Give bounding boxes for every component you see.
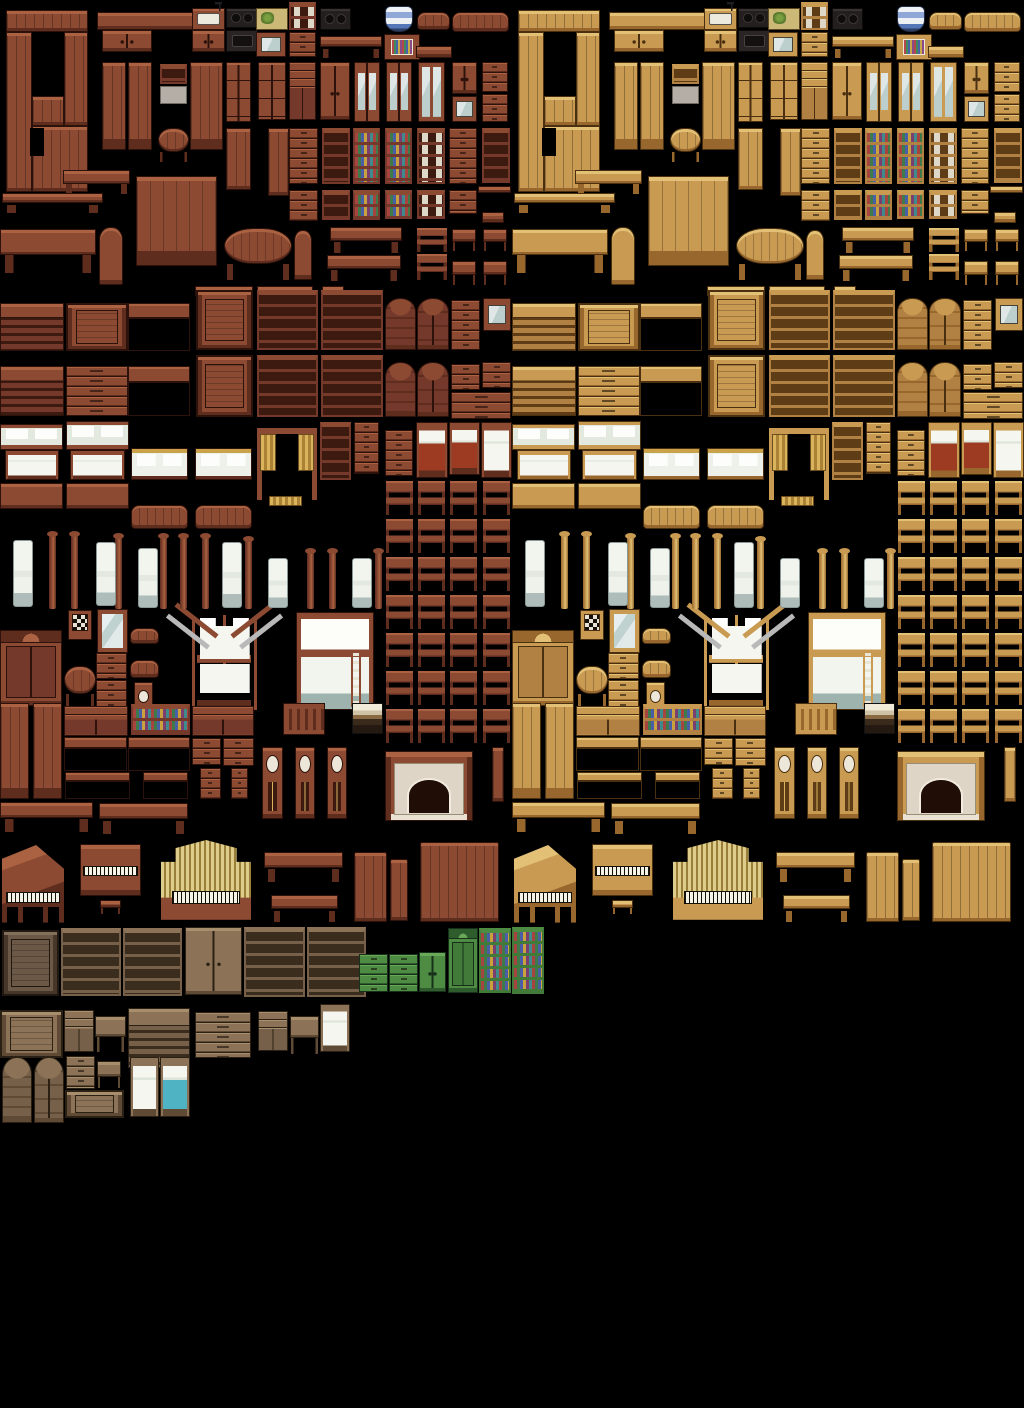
sink-base-cabinet-light: [704, 30, 737, 52]
side-chair-tile-r6c0: [386, 709, 413, 743]
side-chair-tile-r0c0: [386, 481, 413, 515]
stove-top: [226, 8, 258, 28]
drawer-chest-seven: [289, 128, 318, 184]
mattress-slice-light-1: [608, 542, 628, 606]
drawer-chest-four: [449, 128, 477, 184]
drawer-grid-b-light: [735, 738, 766, 766]
bed-post-5: [202, 537, 209, 609]
side-chair-tile-light-r3c0: [898, 595, 925, 629]
low-bench-long-a-light: [512, 802, 605, 832]
pantry-cabinet-b: [128, 62, 152, 150]
drawer-two-top: [482, 62, 508, 92]
carved-pediment-b-light: [642, 660, 671, 678]
bookshelf-low-b-light: [897, 190, 924, 219]
bed-post-light-6: [757, 540, 764, 609]
stool-b: [483, 229, 507, 251]
gray-board-light: [672, 86, 699, 104]
desk-weathered-a: [95, 1016, 126, 1052]
nightstand-weathered: [66, 1056, 95, 1089]
side-chair-tile-r1c3: [483, 519, 510, 553]
nightstand-three-drawer: [385, 430, 413, 476]
side-chair-tile-light-r5c2: [962, 671, 989, 705]
cupboard-small: [452, 62, 477, 94]
cupboard-six-door-light: [738, 62, 763, 122]
shelf-bit-light: [994, 212, 1016, 223]
open-shelf-wide-d-light: [833, 355, 895, 417]
counter-ledge: [416, 46, 452, 58]
side-chair-tile-light-r4c0: [898, 633, 925, 667]
shelf-weathered-d: [307, 927, 366, 997]
arched-cabinet-a: [385, 298, 416, 350]
side-chair-tile-r4c3: [483, 633, 510, 667]
bed-post-light-0: [561, 535, 568, 609]
drawer-tower-light: [866, 422, 891, 474]
bed-top-view-a-light: [512, 424, 575, 450]
canopy-frame-curtains-light: [769, 428, 829, 500]
carved-pediment-a: [130, 628, 159, 644]
double-door-cabinet-tall-light: [708, 355, 765, 417]
cabinet-weathered-ornate: [2, 930, 59, 996]
plank-wall-notch-light: [542, 128, 556, 156]
counter-top: [97, 12, 193, 30]
grandfather-clock-b-light: [807, 747, 827, 819]
workbench-hinged: [63, 170, 130, 194]
bed-post-light-7: [819, 552, 826, 609]
pipe-organ: [161, 840, 251, 920]
side-chair-tile-r3c0: [386, 595, 413, 629]
drawer-chest-low-light: [801, 190, 830, 221]
bookshelf-full-a-light: [865, 128, 892, 184]
side-chair-tile-r2c2: [450, 557, 477, 591]
carved-pediment-a-light: [642, 628, 671, 644]
bed-rail-carved-a: [131, 505, 188, 529]
plank-wall-top-light: [518, 10, 600, 32]
bench-with-back-light: [832, 36, 894, 58]
side-chair-tile-r6c2: [450, 709, 477, 743]
side-chair-tile-light-r1c1: [930, 519, 957, 553]
dresser-weathered-carved: [0, 1010, 63, 1058]
game-table-checker-light: [580, 610, 604, 640]
wide-dresser-six-knob-light: [963, 392, 1023, 419]
side-chair-tile-r6c1: [418, 709, 445, 743]
drawer-box-a-light: [963, 364, 992, 390]
counter-ledge-light: [928, 46, 964, 58]
side-chair-tile-light-r5c1: [930, 671, 957, 705]
side-chair-tile-light-r4c2: [962, 633, 989, 667]
carved-dresser-a: [66, 303, 128, 351]
garden-bench-b-light: [839, 255, 913, 281]
plank-screen-narrow-light: [902, 859, 920, 921]
plank-wall-right-light: [576, 32, 600, 126]
tall-wardrobe-a-light: [512, 703, 541, 799]
green-cabinet-door: [419, 952, 446, 992]
cabinet-weathered-doors: [185, 927, 242, 995]
armoire: [0, 630, 62, 706]
drawer-box-b-light: [994, 362, 1023, 388]
plank-door-light: [738, 128, 763, 190]
bed-white: [481, 422, 512, 478]
drawer-low: [449, 190, 477, 214]
cabinet-drawer-combo: [289, 62, 316, 120]
single-bed-white: [130, 1057, 159, 1117]
oval-table-light: [736, 228, 804, 280]
side-chair-light: [806, 230, 824, 280]
drawer-tower-small-a-light: [712, 768, 733, 799]
side-chair-tile-r1c2: [450, 519, 477, 553]
shelf-tower: [320, 422, 351, 480]
ornate-door-cabinet: [196, 290, 253, 350]
drawer-grid-a: [192, 738, 221, 765]
drawer-low-light: [961, 190, 989, 214]
side-chair-tile-r5c2: [450, 671, 477, 705]
bureau-top-light: [704, 706, 766, 736]
canopy-bed-double-light: [680, 612, 793, 710]
bed-single-b: [70, 450, 125, 480]
bed-red-b-light: [961, 422, 992, 475]
bed-post-3: [160, 537, 167, 609]
dish-cabinet-light: [929, 128, 957, 184]
grandfather-clock-b: [295, 747, 315, 819]
bunk-bed: [296, 612, 374, 710]
open-shelf-wide-b: [321, 290, 383, 350]
tall-wardrobe-b: [33, 703, 62, 799]
side-chair-tile-light-r6c2: [962, 709, 989, 743]
fireplace: [385, 751, 473, 821]
side-chair-tile-light-r5c3: [995, 671, 1022, 705]
open-shelf-wide-c: [257, 355, 318, 417]
bed-post-4: [180, 537, 187, 609]
tall-plank-light: [780, 128, 801, 196]
plank-screen-two: [354, 852, 387, 922]
stool-b-light: [995, 229, 1019, 251]
bed-post-light-9: [887, 552, 894, 609]
bed-rail-carved-a-light: [643, 505, 700, 529]
nightstand-stack-b-light: [608, 680, 639, 708]
tall-wardrobe-b-light: [545, 703, 574, 799]
long-low-bench-light: [514, 193, 615, 213]
side-chair-tile-r1c0: [386, 519, 413, 553]
double-bed-gold-b-light: [707, 448, 764, 480]
side-chair-tile-light-r0c2: [962, 481, 989, 515]
slatted-sideboard-b-light: [512, 366, 576, 416]
glass-door-cabinet-b-light: [898, 62, 924, 122]
garden-bench-b: [327, 255, 401, 281]
counter-arch-cabinets-light: [614, 30, 664, 52]
side-chair-tile-r0c1: [418, 481, 445, 515]
drawer-two-top-light: [994, 62, 1020, 92]
curtain-valance-light: [781, 496, 814, 506]
bunk-bed-light: [808, 612, 886, 710]
side-chair-tile-r6c3: [483, 709, 510, 743]
pantry-cabinet-a: [102, 62, 126, 150]
side-chair-tile-light-r1c0: [898, 519, 925, 553]
game-table-checker: [68, 610, 92, 640]
glass-cabinet-small: [256, 32, 286, 57]
sink-base-cabinet: [192, 30, 225, 52]
double-bed-gold-b: [195, 448, 252, 480]
tileset-canvas: [0, 0, 1024, 1408]
armoire-light: [512, 630, 574, 706]
glass-door-tall-cabinet: [418, 62, 445, 122]
side-chair-tile-r2c0: [386, 557, 413, 591]
side-chair-tile-r2c3: [483, 557, 510, 591]
counter-arch-cabinets: [102, 30, 152, 52]
upright-piano: [80, 844, 141, 896]
stool-d: [483, 261, 507, 285]
open-cubby-shelf: [482, 128, 510, 183]
kitchen-hutch: [190, 62, 223, 150]
desk-left: [64, 737, 127, 771]
bed-single-a-light: [517, 450, 571, 480]
big-plank-table: [136, 176, 217, 266]
plank-wall-mid: [32, 96, 64, 126]
arched-cabinet-b-light: [929, 298, 961, 350]
bench-back-wide: [264, 852, 343, 882]
drawer-tower-small-b: [231, 768, 248, 799]
mattress-slice-4: [268, 558, 288, 608]
arched-cabinet-b: [417, 298, 449, 350]
weaving-loom-light: [896, 34, 932, 60]
striped-chest: [352, 703, 383, 734]
arch-cabinet-weathered-a: [2, 1057, 32, 1123]
bench-back-wide-light: [776, 852, 855, 882]
dish-shelf-low-light: [929, 190, 957, 219]
side-chair-tile-r4c1: [418, 633, 445, 667]
carved-headboard-b-light: [964, 12, 1021, 32]
bookshelf-low-a: [353, 190, 380, 220]
stool-c: [452, 261, 476, 285]
single-bed-teal: [160, 1057, 190, 1117]
side-chair-tile-r4c0: [386, 633, 413, 667]
drawer-two-bottom-light: [994, 94, 1020, 122]
side-chair-tile-light-r3c2: [962, 595, 989, 629]
weaving-loom: [384, 34, 420, 60]
drawer-grid-b: [223, 738, 254, 766]
bed-post-light-5: [714, 537, 721, 609]
kitchen-sink-counter-light: [704, 8, 737, 30]
canopy-frame-curtains: [257, 428, 317, 500]
cupboard-six-door: [226, 62, 251, 122]
oven: [226, 30, 258, 52]
tall-chair: [99, 227, 123, 285]
arched-cabinet-c: [385, 362, 416, 417]
mattress-slice-5: [352, 558, 372, 608]
shelf-low: [322, 190, 350, 220]
bed-post-1: [71, 535, 78, 609]
drawer-chest-seven-light: [801, 128, 830, 184]
nightstand-three-drawer-light: [897, 430, 925, 476]
piano-stool-light: [612, 900, 633, 914]
cutting-board: [256, 8, 288, 30]
arched-cabinet-doors-light: [929, 362, 961, 417]
slatted-sideboard-b: [0, 366, 64, 416]
mattress-slice-light-0: [525, 540, 545, 607]
drawer-tower-small-a: [200, 768, 221, 799]
double-door-cabinet-tall: [196, 355, 253, 417]
mattress-slice-2: [138, 548, 158, 608]
round-side-table: [158, 128, 189, 162]
plank-wall-top: [6, 10, 88, 32]
slatted-sideboard-a-light: [512, 303, 576, 351]
arched-cabinet-doors: [417, 362, 449, 417]
long-dining-table-light: [512, 229, 608, 273]
gray-board: [160, 86, 187, 104]
grand-piano-light: [514, 845, 576, 923]
dresser-two-drawer: [66, 366, 128, 416]
open-shelf-wide-a: [257, 290, 318, 350]
bookshelf-low-a-light: [865, 190, 892, 220]
side-chair-tile-light-r3c1: [930, 595, 957, 629]
double-bed-gold-a-light: [643, 448, 700, 480]
hutch-bookshelf-light: [643, 704, 702, 735]
plain-double-cabinet: [320, 62, 350, 120]
plank-wall-notch: [30, 128, 44, 156]
cupboard-four-door-light: [770, 62, 798, 120]
empty-shelf: [322, 128, 350, 184]
low-bench-long-b: [99, 803, 188, 834]
stove-with-pot-light: [832, 8, 863, 30]
nightstand-stack-a: [96, 653, 127, 679]
slatted-sideboard-a: [0, 303, 64, 351]
desk-low-right-light: [655, 772, 700, 799]
kitchen-sink-counter: [192, 8, 225, 30]
bed-rail-carved-b-light: [707, 505, 764, 529]
long-low-bench: [2, 193, 103, 213]
glass-cabinet-mini-light: [964, 96, 989, 122]
grandfather-clock-c: [327, 747, 347, 819]
balustrade-pedestal-light: [795, 703, 837, 735]
nightstand-stack-a-light: [608, 653, 639, 679]
bureau-top: [192, 706, 254, 736]
bed-top-view-b: [66, 421, 129, 450]
oval-table: [224, 228, 292, 280]
bed-footboard-a-light: [512, 483, 575, 509]
shelf-weathered-a: [61, 928, 121, 996]
empty-shelf-light: [834, 128, 862, 184]
shelf-weathered-c: [244, 927, 305, 997]
shelf-bit: [482, 212, 504, 223]
striped-chest-light: [864, 703, 895, 734]
blue-vase-pot-light: [897, 6, 925, 32]
bench-low-wide: [271, 895, 338, 922]
balustrade-pedestal: [283, 703, 325, 735]
plank-wall-right: [64, 32, 88, 126]
round-table-b-light: [576, 666, 608, 706]
low-bench-long-a: [0, 802, 93, 832]
side-chair-tile-light-r4c3: [995, 633, 1022, 667]
shelf-tower-light: [832, 422, 863, 480]
pantry-cabinet-b-light: [640, 62, 664, 150]
plank-screen-wide: [420, 842, 499, 922]
bed-post-0: [49, 535, 56, 609]
plank-wall-left-light: [518, 32, 544, 192]
bed-post-light-3: [672, 537, 679, 609]
double-bed-gold-a: [131, 448, 188, 480]
side-chair-tile-r5c0: [386, 671, 413, 705]
nightstand-flap-light: [963, 300, 992, 350]
cabinet-weathered-small-a: [64, 1010, 94, 1052]
stove-with-pot: [320, 8, 351, 30]
open-shelf-wide-b-light: [833, 290, 895, 350]
open-shelf-wide-a-light: [769, 290, 830, 350]
green-bookshelf-a: [479, 928, 511, 993]
plank-door: [226, 128, 251, 190]
side-chair-tile-light-r1c2: [962, 519, 989, 553]
stool-c-light: [964, 261, 988, 285]
carved-headboard-b: [452, 12, 509, 32]
side-chair-tile-light-r6c3: [995, 709, 1022, 743]
bed-post-9: [375, 552, 382, 609]
cabinet-weathered-small-b: [258, 1011, 288, 1051]
plank-wall-left: [6, 32, 32, 192]
nightstand-flap: [451, 300, 480, 350]
side-chair-tile-light-r2c0: [898, 557, 925, 591]
counter-top-light: [609, 12, 705, 30]
side-table-weathered: [97, 1061, 121, 1088]
drawer-chest-low: [289, 190, 318, 221]
glass-door-cabinet-a-light: [866, 62, 892, 122]
bed-post-light-8: [841, 552, 848, 609]
bookshelf-full-b: [385, 128, 412, 184]
plain-double-cabinet-light: [832, 62, 862, 120]
workbench-hinged-light: [575, 170, 642, 194]
nightstand-open-light: [995, 298, 1023, 331]
cupboard-four-door: [258, 62, 286, 120]
garden-bench-a: [330, 227, 402, 253]
mattress-slice-0: [13, 540, 33, 607]
pillar-leg: [492, 747, 504, 802]
shelf-weathered-b: [123, 928, 182, 996]
small-white-bed: [320, 1004, 350, 1052]
carved-headboard-a-light: [929, 12, 962, 30]
bed-post-light-4: [692, 537, 699, 609]
bed-red-a: [416, 422, 448, 478]
grand-piano: [2, 845, 64, 923]
shelf-low-light: [834, 190, 862, 220]
dining-chair-a-light: [929, 228, 959, 252]
hutch-cabinet-light: [576, 706, 640, 736]
mattress-slice-light-2: [650, 548, 670, 608]
side-chair-tile-light-r5c0: [898, 671, 925, 705]
glass-cabinet-mini: [452, 96, 477, 122]
arched-cabinet-a-light: [897, 298, 928, 350]
shelf-strip-light: [990, 186, 1023, 193]
bed-post-6: [245, 540, 252, 609]
side-chair-tile-r0c3: [483, 481, 510, 515]
drawer-box-a: [451, 364, 480, 390]
bookshelf-full-b-light: [897, 128, 924, 184]
side-chair-tile-r3c2: [450, 595, 477, 629]
side-chair-tile-r3c1: [418, 595, 445, 629]
side-chair-tile-r4c2: [450, 633, 477, 667]
open-shelf-wide-d: [321, 355, 383, 417]
dish-shelf-small: [289, 2, 316, 30]
dish-shelf-low: [417, 190, 445, 219]
dish-cabinet: [417, 128, 445, 184]
big-plank-table-light: [648, 176, 729, 266]
desk-right-light: [640, 737, 702, 771]
drawer-tower: [354, 422, 379, 474]
kitchen-hutch-light: [702, 62, 735, 150]
bed-red-b: [449, 422, 480, 475]
canopy-bed-double: [168, 612, 281, 710]
fireplace-light: [897, 751, 985, 821]
garden-bench-a-light: [842, 227, 914, 253]
desk-low-left-light: [577, 772, 642, 799]
side-chair-tile-light-r2c1: [930, 557, 957, 591]
writing-desk-a: [128, 366, 190, 416]
glass-cabinet-small-light: [768, 32, 798, 57]
